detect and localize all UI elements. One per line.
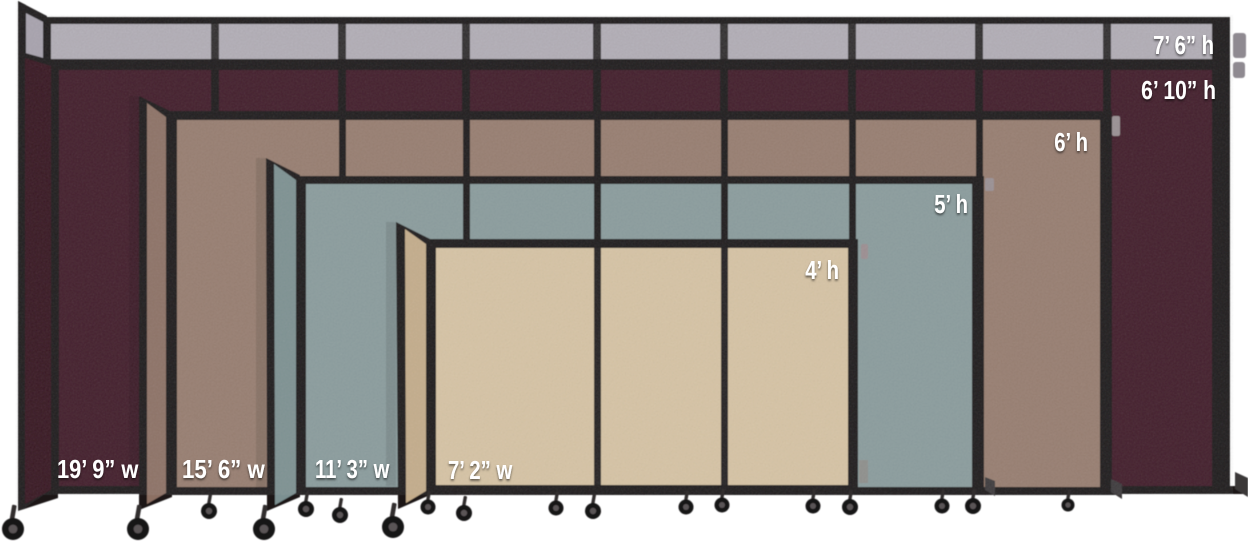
svg-text:19’ 9” w: 19’ 9” w (57, 455, 139, 484)
svg-text:6’ h: 6’ h (1054, 128, 1088, 157)
svg-text:11’ 3” w: 11’ 3” w (315, 455, 390, 484)
svg-text:4’ h: 4’ h (805, 256, 839, 285)
svg-text:5’ h: 5’ h (934, 190, 968, 219)
svg-text:6’ 10” h: 6’ 10” h (1141, 77, 1216, 106)
svg-text:7’ 6” h: 7’ 6” h (1153, 31, 1214, 60)
svg-text:15’ 6” w: 15’ 6” w (182, 455, 265, 484)
svg-text:7’ 2” w: 7’ 2” w (448, 456, 513, 485)
